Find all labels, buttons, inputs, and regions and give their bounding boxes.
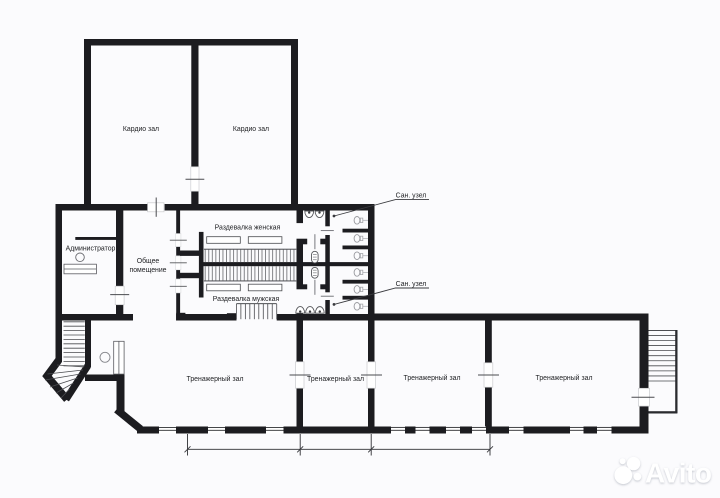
svg-text:Тренажерный зал: Тренажерный зал — [187, 375, 244, 383]
svg-text:Кардио зал: Кардио зал — [123, 126, 159, 133]
svg-text:Сан. узел: Сан. узел — [396, 281, 427, 288]
svg-text:Раздевалка мужская: Раздевалка мужская — [213, 296, 280, 303]
svg-text:Сан. узел: Сан. узел — [396, 192, 427, 199]
svg-text:помещение: помещение — [129, 267, 166, 274]
svg-text:Кардио зал: Кардио зал — [233, 126, 269, 133]
svg-text:Общее: Общее — [137, 257, 160, 265]
svg-text:Тренажерный зал: Тренажерный зал — [404, 374, 461, 382]
svg-text:Раздевалка женская: Раздевалка женская — [215, 225, 281, 232]
svg-text:Тренажерный зал: Тренажерный зал — [307, 375, 364, 383]
svg-text:Avito: Avito — [645, 458, 712, 489]
svg-text:Администратор: Администратор — [66, 246, 116, 253]
svg-text:Тренажерный зал: Тренажерный зал — [536, 374, 593, 382]
